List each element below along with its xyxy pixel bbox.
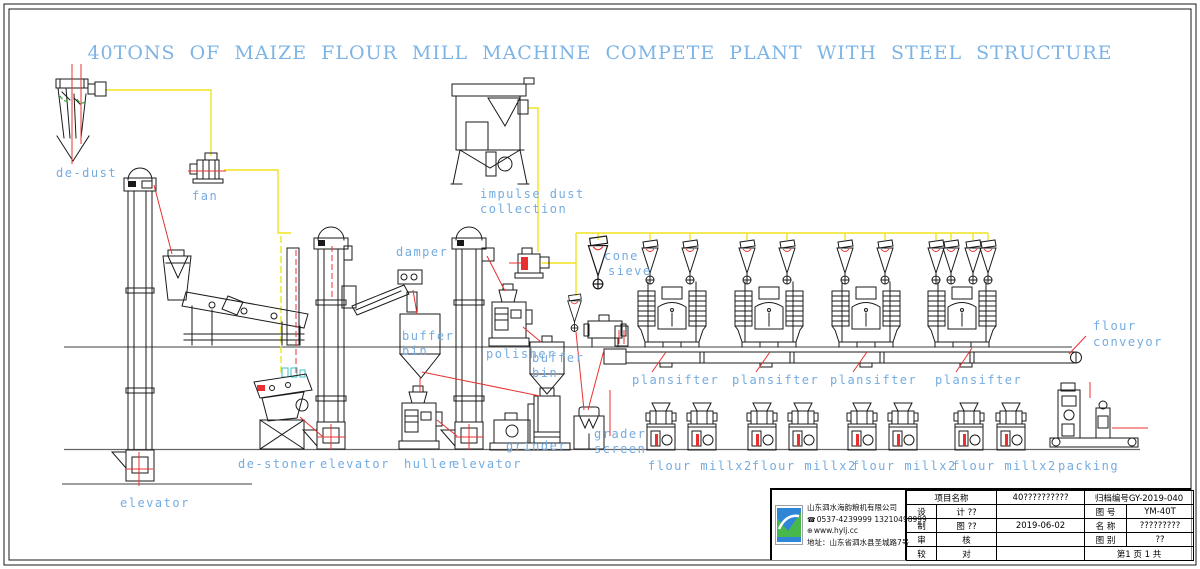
plansifter-3-machine <box>832 240 900 347</box>
design-empty <box>997 505 1085 519</box>
label-grader: grader <box>594 428 646 442</box>
draft-date: 2019-06-02 <box>997 519 1085 533</box>
polisher-machine <box>489 284 532 346</box>
name-value: ????????? <box>1127 519 1194 533</box>
proof-value: 对 <box>937 547 997 561</box>
drawing-no-label: 图 号 <box>1085 505 1127 519</box>
label-fan: fan <box>192 190 218 204</box>
drawing-title: 40TONS OF MAIZE FLOUR MILL MACHINE COMPE… <box>0 42 1200 64</box>
review-label: 审 <box>907 533 937 547</box>
globe-icon: ⊕ <box>807 527 813 535</box>
plansifter-2-machine <box>735 240 803 347</box>
fan-machine <box>190 153 223 183</box>
label-elevator-right: elevator <box>452 458 522 472</box>
plansifter-1-machine <box>638 240 706 347</box>
category-label: 图 别 <box>1085 533 1127 547</box>
company-website: www.hylj.cc <box>814 526 858 535</box>
label-cone: cone <box>604 250 639 264</box>
label-plansifter-2: plansifter <box>732 374 819 388</box>
title-block: 山东泗水海韵粮机有限公司 ☎0537-4239999 13210498999 ⊕… <box>770 488 1191 560</box>
label-sieve: sieve <box>608 265 652 279</box>
label-flour: flour <box>1093 320 1137 334</box>
vibrating-sieve-machine <box>163 250 308 345</box>
label-conveyor: conveyor <box>1093 336 1163 350</box>
label-plansifter-3: plansifter <box>830 374 917 388</box>
cone-sieve-machine <box>568 236 608 331</box>
project-label: 项目名称 <box>907 491 997 505</box>
impulse-dust-collector-machine <box>451 78 534 184</box>
label-huller: huller <box>404 458 456 472</box>
label-de-dust: de-dust <box>56 167 117 181</box>
proof-label: 较 <box>907 547 937 561</box>
elevator-mid-machine <box>303 227 356 449</box>
label-flour-mill-2: flour millx2 <box>752 460 857 474</box>
flour-mill-machines <box>646 403 1026 450</box>
elevator-left-machine <box>112 168 156 481</box>
draft-value: 图 ?? <box>937 519 997 533</box>
label-de-stoner: de-stoner <box>238 458 317 472</box>
review-value: 核 <box>937 533 997 547</box>
label-elevator-mid: elevator <box>320 458 390 472</box>
damper-machine <box>352 270 422 315</box>
de-stoner-machine <box>254 368 312 449</box>
label-impulse-dust-2: collection <box>480 203 567 217</box>
phone-icon: ☎ <box>807 516 816 524</box>
label-buffer-2b: bin <box>532 367 558 381</box>
label-screen: screen <box>594 443 646 457</box>
name-label: 名 称 <box>1085 519 1127 533</box>
company-info: 山东泗水海韵粮机有限公司 ☎0537-4239999 13210498999 ⊕… <box>772 490 906 560</box>
plansifter-4-machine <box>928 240 996 347</box>
label-flour-mill-4: flour millx2 <box>952 460 1057 474</box>
design-value: 计 ?? <box>937 505 997 519</box>
label-damper: damper <box>396 246 448 260</box>
huller-machine <box>399 386 442 449</box>
page-info: 第1 页 1 共 <box>1085 547 1194 561</box>
label-plansifter-1: plansifter <box>632 374 719 388</box>
label-buffer-1b: bin <box>402 345 428 359</box>
label-buffer-1a: buffer <box>402 330 454 344</box>
company-logo <box>775 505 803 545</box>
flow-diagram-canvas: 40TONS OF MAIZE FLOUR MILL MACHINE COMPE… <box>0 0 1200 569</box>
plant-line-drawing <box>0 0 1200 569</box>
pneumatic-lines <box>105 90 988 374</box>
label-buffer-2a: buffer <box>532 352 584 366</box>
draft-label: 制 <box>907 519 937 533</box>
label-elevator-left: elevator <box>120 497 190 511</box>
drawing-no: YM-40T <box>1127 505 1194 519</box>
label-impulse-dust-1: impulse dust <box>480 188 585 202</box>
label-flour-mill-1: flour millx2 <box>648 460 753 474</box>
rotary-sieve-machine <box>584 315 626 347</box>
archive-no: 归档编号GY-2019-040 <box>1085 491 1194 505</box>
packing-machine <box>1050 383 1138 447</box>
label-packing: packing <box>1058 460 1119 474</box>
project-value: 40?????????? <box>997 491 1085 505</box>
category-value: ?? <box>1127 533 1194 547</box>
label-flour-mill-3: flour millx2 <box>852 460 957 474</box>
proof-empty <box>997 547 1085 561</box>
label-grinder: grinder <box>506 440 567 454</box>
design-label: 设 <box>907 505 937 519</box>
title-block-table: 项目名称 40?????????? 归档编号GY-2019-040 设 计 ??… <box>906 490 1194 561</box>
review-empty <box>997 533 1085 547</box>
label-plansifter-4: plansifter <box>935 374 1022 388</box>
